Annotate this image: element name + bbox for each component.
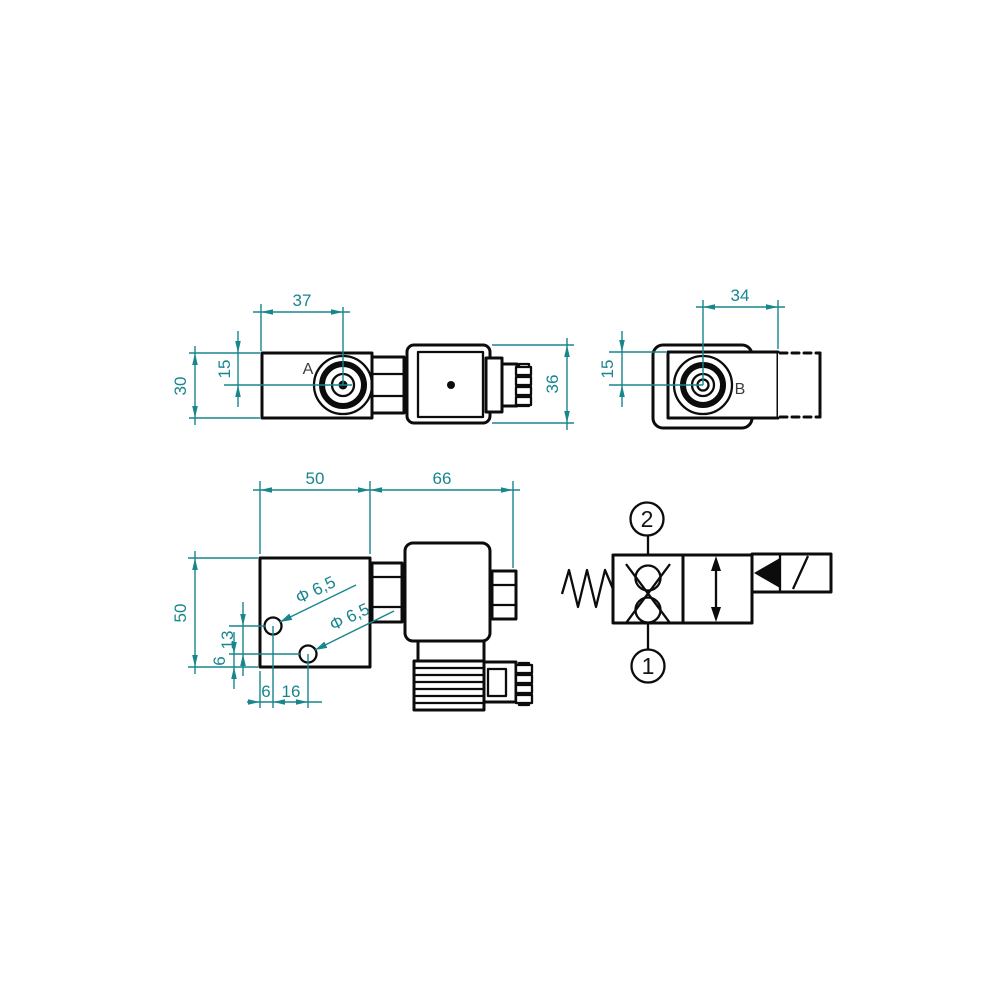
drawing-svg: A 37 15 30 36 B: [0, 0, 1000, 1000]
hydraulic-schematic: 2 1: [562, 503, 831, 683]
dim-30: 30: [171, 377, 190, 396]
arrowhead: [235, 385, 241, 397]
connector-plug-step: [502, 364, 517, 406]
dim-36: 36: [543, 375, 562, 394]
solenoid-center-dot: [447, 381, 455, 389]
arrowhead: [192, 655, 198, 667]
arrowhead: [619, 340, 625, 352]
spring-symbol: [562, 570, 613, 607]
connector-plug: [486, 358, 502, 412]
arrowhead: [564, 345, 570, 357]
hex-nut-side: [372, 357, 404, 413]
arrowhead: [231, 667, 237, 679]
arrowhead: [248, 699, 260, 705]
dim-37: 37: [293, 291, 312, 310]
arrowhead: [192, 558, 198, 570]
port-a-label: A: [303, 361, 314, 378]
dim-50-width: 50: [306, 469, 325, 488]
hex-nut-small: [492, 571, 516, 619]
cable-gland-rib: [516, 665, 532, 673]
port-1-number: 1: [642, 653, 655, 679]
arrowhead: [235, 341, 241, 353]
cable-gland-rib: [516, 397, 531, 405]
arrowhead: [766, 304, 778, 310]
cable-gland-rib: [516, 367, 531, 375]
arrowhead: [240, 614, 246, 626]
dim-34: 34: [731, 286, 750, 305]
arrowhead: [703, 304, 715, 310]
connector-neck: [418, 641, 484, 661]
cable-gland-rib: [516, 675, 532, 683]
connector-terminal-inner: [488, 669, 506, 696]
dim-50-height: 50: [171, 604, 190, 623]
arrowhead: [358, 487, 370, 493]
arrowhead: [331, 309, 343, 315]
port-b-label: B: [735, 381, 746, 398]
hex-nut-front: [372, 563, 402, 622]
arrowhead: [564, 411, 570, 423]
dim-6-vertical: 6: [210, 656, 229, 665]
arrowhead: [619, 385, 625, 397]
cable-gland-rib: [516, 387, 531, 395]
dim-66: 66: [433, 469, 452, 488]
view-a: A 37 15 30 36: [171, 291, 574, 430]
cable-gland-rib: [516, 377, 531, 385]
view-front: 50 66 50 13 6 6 16 Φ 6,5: [171, 469, 532, 710]
arrowhead: [501, 487, 513, 493]
arrowhead: [261, 309, 273, 315]
view-b: B 34 15: [598, 286, 820, 428]
technical-drawing-canvas: A 37 15 30 36 B: [0, 0, 1000, 1000]
arrowhead: [370, 487, 382, 493]
arrowhead: [260, 487, 272, 493]
port-2-number: 2: [641, 506, 654, 532]
arrowhead: [192, 406, 198, 418]
arrowhead: [192, 353, 198, 365]
dim-6-horizontal: 6: [261, 682, 270, 701]
cable-gland-rib: [516, 695, 532, 703]
dim-15: 15: [598, 360, 617, 379]
solenoid-coil-front: [405, 543, 490, 641]
dim-16: 16: [282, 682, 301, 701]
cable-gland-rib: [516, 685, 532, 693]
threaded-stub-fill: [778, 353, 820, 417]
dim-15: 15: [215, 360, 234, 379]
arrowhead: [240, 654, 246, 666]
